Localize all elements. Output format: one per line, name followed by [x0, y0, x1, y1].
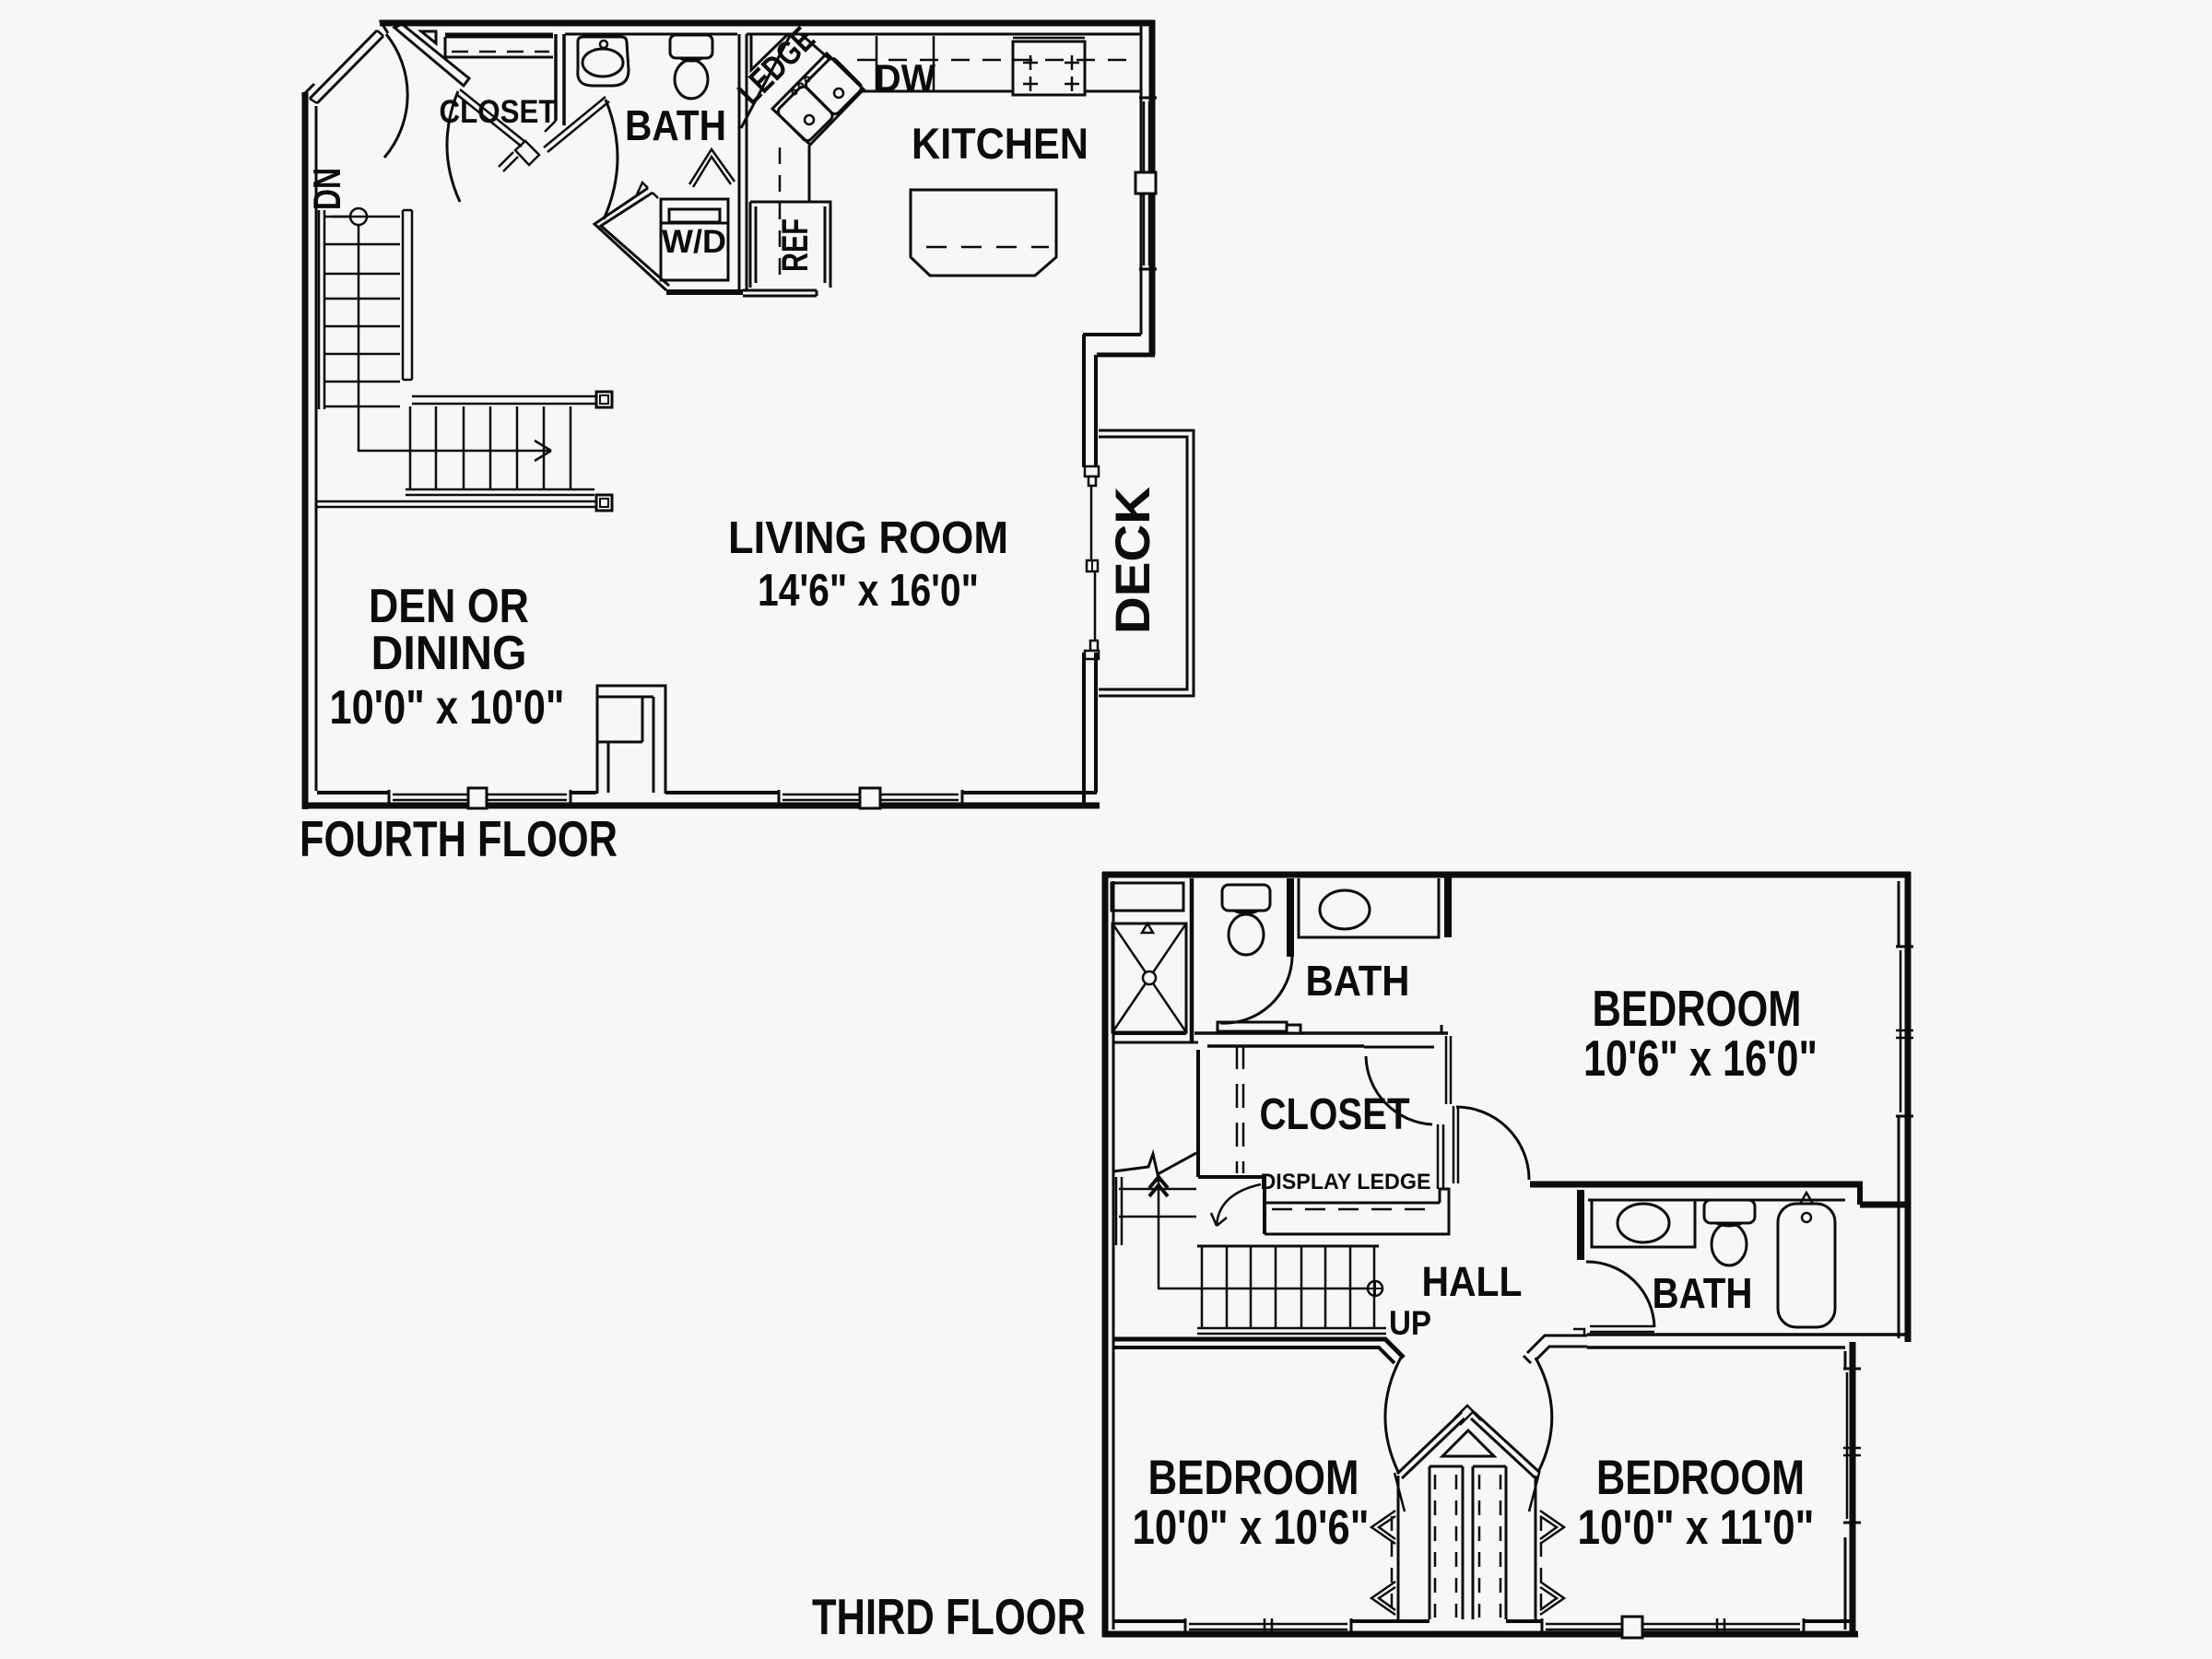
- svg-text:10'0" x 10'6": 10'0" x 10'6": [1133, 1500, 1370, 1555]
- svg-text:14'6" x 16'0": 14'6" x 16'0": [758, 566, 979, 616]
- svg-text:KITCHEN: KITCHEN: [912, 119, 1088, 168]
- svg-text:CLOSET: CLOSET: [1260, 1090, 1410, 1139]
- svg-text:BEDROOM: BEDROOM: [1593, 980, 1802, 1037]
- svg-text:DN: DN: [305, 168, 348, 210]
- svg-text:FOURTH FLOOR: FOURTH FLOOR: [300, 810, 618, 867]
- svg-text:BATH: BATH: [1306, 957, 1410, 1005]
- svg-text:BEDROOM: BEDROOM: [1148, 1451, 1359, 1505]
- svg-text:UP: UP: [1389, 1304, 1431, 1342]
- svg-text:DW: DW: [875, 56, 935, 100]
- svg-text:DISPLAY LEDGE: DISPLAY LEDGE: [1261, 1170, 1431, 1194]
- svg-text:BATH: BATH: [625, 101, 726, 149]
- svg-text:10'0" x 10'0": 10'0" x 10'0": [330, 681, 565, 735]
- svg-text:DINING: DINING: [371, 627, 527, 680]
- svg-text:BEDROOM: BEDROOM: [1596, 1451, 1805, 1505]
- svg-text:LIVING ROOM: LIVING ROOM: [728, 513, 1008, 563]
- svg-text:CLOSET: CLOSET: [440, 94, 557, 130]
- svg-text:10'0" x 11'0": 10'0" x 11'0": [1578, 1500, 1815, 1555]
- svg-text:W/D: W/D: [662, 224, 726, 260]
- svg-text:10'6" x 16'0": 10'6" x 16'0": [1583, 1030, 1818, 1087]
- svg-text:BATH: BATH: [1653, 1269, 1753, 1317]
- svg-text:THIRD FLOOR: THIRD FLOOR: [812, 1588, 1086, 1645]
- svg-text:HALL: HALL: [1422, 1258, 1523, 1305]
- svg-text:REF: REF: [775, 218, 816, 272]
- svg-text:DECK: DECK: [1106, 487, 1160, 634]
- svg-text:DEN OR: DEN OR: [369, 580, 529, 633]
